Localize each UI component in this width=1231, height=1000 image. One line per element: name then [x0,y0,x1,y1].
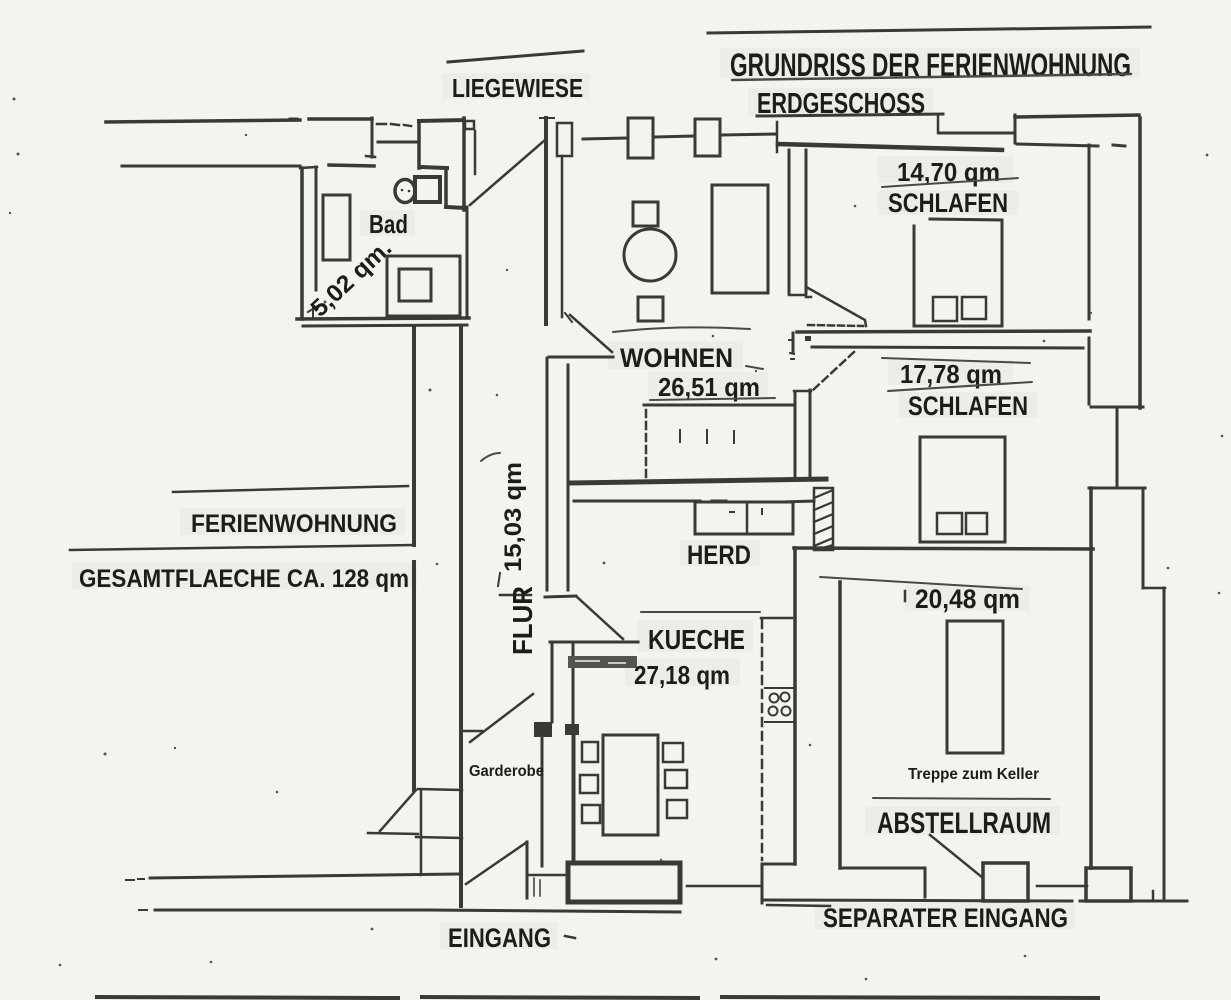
svg-text:KUECHE: KUECHE [648,624,745,655]
svg-text:HERD: HERD [687,540,751,570]
svg-text:FERIENWOHNUNG: FERIENWOHNUNG [191,510,397,538]
svg-text:FLUR: FLUR [507,586,538,655]
svg-text:ABSTELLRAUM: ABSTELLRAUM [877,807,1051,840]
svg-text:WOHNEN: WOHNEN [620,343,733,373]
svg-text:LIEGEWIESE: LIEGEWIESE [452,73,583,103]
svg-text:Bad: Bad [369,209,408,239]
svg-text:15,03 qm: 15,03 qm [500,462,527,572]
svg-text:SCHLAFEN: SCHLAFEN [908,391,1028,421]
svg-text:GESAMTFLAECHE CA. 128 qm: GESAMTFLAECHE CA. 128 qm [79,565,409,593]
svg-text:Treppe zum Keller: Treppe zum Keller [908,766,1039,783]
svg-text:Garderobe: Garderobe [469,763,544,780]
svg-text:SCHLAFEN: SCHLAFEN [888,188,1008,218]
svg-text:EINGANG: EINGANG [448,923,551,953]
svg-text:20,48 qm: 20,48 qm [915,584,1020,614]
svg-text:27,18 qm: 27,18 qm [634,660,730,690]
svg-text:SEPARATER EINGANG: SEPARATER EINGANG [823,903,1068,933]
